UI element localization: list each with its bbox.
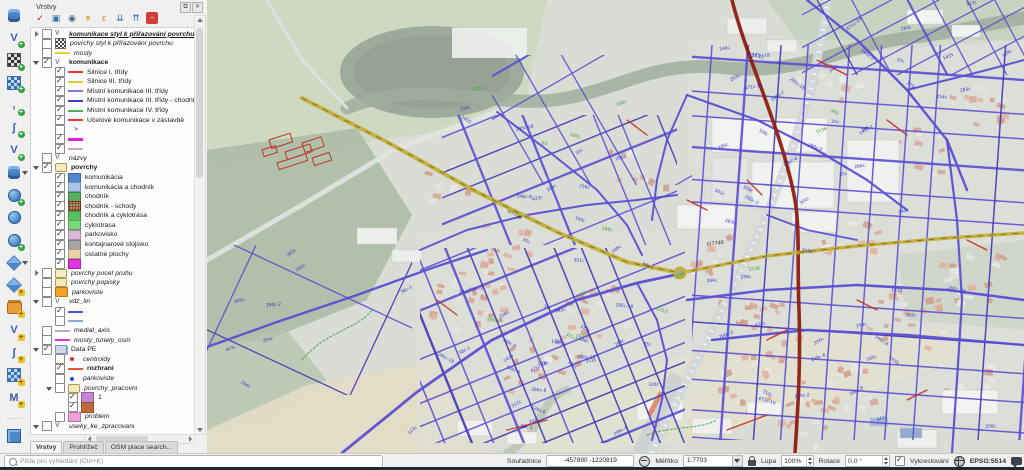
layer-row[interactable]: komunikácia bbox=[46, 173, 195, 183]
layer-row[interactable]: Vuseky_ke_zpracovani bbox=[33, 421, 195, 431]
scroll-right-icon[interactable] bbox=[189, 436, 192, 442]
expander-spacer bbox=[46, 251, 53, 258]
line-symbol bbox=[68, 110, 83, 112]
scale-lock-icon[interactable] bbox=[748, 460, 756, 466]
expander-spacer bbox=[46, 413, 53, 420]
svg-text:254c: 254c bbox=[936, 94, 948, 101]
expander-spacer bbox=[46, 184, 53, 191]
map-canvas[interactable]: 301c35c283c471c-10290c-2301c226c-6143526… bbox=[207, 0, 1024, 453]
layer-label: mosty bbox=[74, 50, 92, 57]
svg-text:1536: 1536 bbox=[748, 266, 760, 273]
scale-combobox[interactable]: 1:7703 bbox=[683, 455, 743, 467]
layer-row[interactable] bbox=[46, 307, 195, 317]
line-symbol bbox=[68, 100, 83, 102]
layer-row[interactable]: cyklotrasa bbox=[46, 220, 195, 230]
svg-text:1435: 1435 bbox=[551, 339, 562, 345]
scale-label: Měřítko bbox=[655, 458, 678, 465]
crs-status[interactable]: EPSG:5514 bbox=[970, 458, 1006, 465]
point-symbol bbox=[70, 377, 74, 381]
fill-symbol bbox=[68, 220, 81, 230]
expander-spacer bbox=[46, 97, 53, 104]
status-bar: Pište pro vyhledání (Ctrl+K) Souřadnice … bbox=[0, 453, 1024, 468]
fill-symbol bbox=[68, 182, 81, 192]
point-symbol bbox=[70, 357, 74, 361]
layer-checkbox[interactable] bbox=[55, 316, 65, 326]
layer-tree-vertical-scrollbar[interactable] bbox=[194, 15, 206, 435]
add-database-layer-button[interactable] bbox=[4, 163, 24, 183]
line-symbol bbox=[68, 90, 83, 92]
collapse-icon[interactable] bbox=[33, 59, 40, 66]
layer-row[interactable]: Místní komunikace III. třídy bbox=[46, 86, 195, 96]
expander-spacer bbox=[33, 289, 40, 296]
layer-row[interactable]: Místní komunikace IV. třídy bbox=[46, 106, 195, 116]
layer-checkbox[interactable] bbox=[55, 383, 65, 393]
topology-checker-button[interactable] bbox=[4, 426, 24, 446]
layer-tree: Vkomunikace styl k přiřazování povrchupo… bbox=[30, 27, 198, 435]
layer-row[interactable]: parkoviste bbox=[46, 374, 195, 384]
line-symbol bbox=[68, 148, 83, 150]
collapse-icon[interactable] bbox=[46, 385, 53, 392]
plus-badge-icon: + bbox=[18, 154, 25, 161]
fill-symbol bbox=[55, 287, 68, 297]
layer-label: povrchy popisky bbox=[71, 279, 120, 286]
coordinate-input[interactable]: -457890 -1220819 bbox=[546, 455, 634, 467]
layer-checkbox[interactable] bbox=[42, 268, 52, 278]
layer-label: Místní komunikace III. třídy bbox=[87, 88, 168, 95]
fill-symbol bbox=[68, 192, 81, 202]
collapse-icon[interactable] bbox=[33, 346, 40, 353]
layer-checkbox[interactable] bbox=[42, 326, 52, 336]
panel-tab-bar: Vrstvy Prohlížeč OSM place search... bbox=[30, 441, 179, 453]
layer-row[interactable]: povrchy popisky bbox=[33, 278, 195, 288]
layer-label: ostatné plochy bbox=[85, 251, 129, 258]
layer-row[interactable]: Účelové komunikace v zástavbě bbox=[46, 115, 195, 125]
vector-layer-icon: V bbox=[55, 154, 65, 162]
layer-row[interactable]: Data PE bbox=[33, 345, 195, 355]
filter-legend-button[interactable]: ▼ bbox=[82, 12, 94, 24]
new-shapefile-layer-button[interactable]: + bbox=[4, 298, 24, 318]
layer-label: parkoviste bbox=[72, 289, 103, 296]
magnifier-label: Lupa bbox=[761, 458, 776, 465]
layer-row[interactable]: Silnice III. třídy bbox=[46, 77, 195, 87]
new-temporary-layer-button[interactable]: + bbox=[4, 365, 24, 385]
layer-checkbox[interactable] bbox=[42, 345, 52, 355]
layer-label: komunikácia bbox=[85, 174, 123, 181]
layer-checkbox[interactable] bbox=[42, 29, 52, 39]
manage-map-themes-button[interactable]: ◉ bbox=[66, 12, 78, 24]
svg-text:1435: 1435 bbox=[891, 287, 903, 293]
layer-label: Místní komunikace III. třídy - chodníky bbox=[87, 97, 195, 104]
dropdown-caret-icon bbox=[22, 261, 28, 265]
collapse-icon[interactable] bbox=[33, 423, 40, 430]
vertical-scroll-thumb[interactable] bbox=[196, 28, 203, 178]
scroll-down-icon[interactable] bbox=[197, 428, 203, 432]
collapse-icon[interactable] bbox=[33, 164, 40, 171]
expander-spacer bbox=[46, 260, 53, 267]
layer-checkbox[interactable] bbox=[55, 144, 65, 154]
svg-text:328c: 328c bbox=[648, 382, 659, 388]
extent-toggle-icon[interactable] bbox=[639, 456, 650, 467]
layer-label: Data PE bbox=[71, 346, 96, 353]
expander-spacer bbox=[46, 222, 53, 229]
expander-spacer bbox=[46, 107, 53, 114]
expander-spacer bbox=[46, 117, 53, 124]
layer-row[interactable] bbox=[46, 316, 195, 326]
layer-row[interactable]: medial_axis bbox=[33, 326, 195, 336]
layer-row[interactable] bbox=[46, 259, 195, 269]
group-icon bbox=[55, 345, 67, 354]
layer-label: cyklotrasa bbox=[85, 222, 116, 229]
layer-label: Místní komunikace IV. třídy bbox=[87, 107, 168, 114]
layer-label: povrchy pocet pruhu bbox=[71, 270, 133, 277]
svg-text:290c-2: 290c-2 bbox=[266, 302, 282, 309]
layer-label: > bbox=[74, 126, 78, 133]
layer-row[interactable]: kontajnarové stojisko bbox=[46, 240, 195, 250]
plus-badge-icon: + bbox=[18, 109, 25, 116]
add-wfs-layer-button[interactable]: + bbox=[4, 230, 24, 250]
layer-row[interactable] bbox=[46, 134, 195, 144]
fill-symbol bbox=[68, 201, 81, 211]
layer-checkbox[interactable] bbox=[42, 421, 52, 431]
expander-spacer bbox=[46, 193, 53, 200]
svg-text:256c: 256c bbox=[985, 423, 997, 429]
filter-expression-button[interactable]: ε bbox=[98, 12, 110, 24]
layers-panel: Vrstvy ⧉ ✕ ✓▣◉▼ε⇊⇈− Vkomunikace styl k p… bbox=[28, 0, 208, 453]
svg-text:284c: 284c bbox=[706, 277, 718, 284]
tab-vrstvy[interactable]: Vrstvy bbox=[30, 441, 62, 453]
expander-spacer bbox=[46, 365, 53, 372]
expand-icon[interactable] bbox=[33, 270, 40, 277]
plus-badge-icon: + bbox=[18, 131, 25, 138]
expander-spacer bbox=[46, 145, 53, 152]
layer-label: mosty_tunely_osm bbox=[74, 337, 131, 344]
add-delimited-text-button[interactable]: ,+ bbox=[4, 95, 24, 115]
layer-row[interactable]: parkoviste bbox=[33, 287, 195, 297]
plus-badge-icon: + bbox=[18, 199, 25, 206]
svg-text:60: 60 bbox=[541, 141, 547, 147]
rotation-label: Rotace bbox=[819, 458, 841, 465]
layer-label: komunikácia a chodník bbox=[85, 184, 154, 191]
layer-row[interactable]: mosty bbox=[33, 48, 195, 58]
add-mesh-layer-button[interactable]: + bbox=[4, 73, 24, 93]
scale-dropdown-icon[interactable] bbox=[733, 455, 743, 467]
expander-spacer bbox=[33, 327, 40, 334]
new-gpx-layer-button[interactable]: ʃ+ bbox=[4, 343, 24, 363]
layer-row[interactable]: parkovisko bbox=[46, 230, 195, 240]
line-symbol bbox=[68, 311, 83, 313]
collapse-icon[interactable] bbox=[33, 298, 40, 305]
layer-label: Účelové komunikace v zástavbě bbox=[87, 117, 184, 124]
plus-badge-icon: + bbox=[18, 289, 25, 296]
vector-layer-icon: V bbox=[55, 422, 65, 430]
label-layer-icon bbox=[55, 278, 67, 287]
expander-spacer bbox=[46, 318, 53, 325]
plus-badge-icon: + bbox=[18, 311, 25, 318]
layer-checkbox[interactable] bbox=[55, 374, 65, 384]
fill-symbol bbox=[68, 173, 81, 183]
add-spatialite-layer-button[interactable]: ʃ+ bbox=[4, 118, 24, 138]
layer-checkbox[interactable] bbox=[68, 402, 78, 412]
fill-symbol bbox=[68, 249, 81, 259]
layer-checkbox[interactable] bbox=[42, 287, 52, 297]
render-label: Vykreslování bbox=[910, 458, 949, 465]
dropdown-caret-icon bbox=[22, 171, 28, 175]
svg-text:342c: 342c bbox=[905, 312, 916, 318]
layer-label: kontajnarové stojisko bbox=[85, 241, 148, 248]
layer-row[interactable] bbox=[59, 402, 195, 412]
fill-symbol bbox=[68, 211, 81, 221]
svg-text:301c: 301c bbox=[528, 418, 540, 425]
coordinate-label: Souřadnice bbox=[507, 458, 541, 465]
expander-spacer bbox=[46, 203, 53, 210]
scroll-up-icon[interactable] bbox=[197, 18, 203, 22]
expand-icon[interactable] bbox=[33, 31, 40, 38]
layer-row[interactable] bbox=[46, 144, 195, 154]
add-wcs-layer-button[interactable] bbox=[4, 208, 24, 228]
svg-text:254c: 254c bbox=[459, 289, 470, 295]
layer-row[interactable]: > bbox=[46, 125, 195, 135]
expander-spacer bbox=[46, 126, 53, 133]
fill-symbol bbox=[68, 259, 81, 269]
rotation-spinbox[interactable]: 0,0 ° bbox=[845, 455, 890, 467]
fill-symbol bbox=[68, 240, 81, 250]
svg-text:358c-1: 358c-1 bbox=[486, 317, 502, 324]
layers-panel-toolbar: ✓▣◉▼ε⇊⇈− bbox=[34, 11, 158, 25]
open-layer-styling-button[interactable]: ✓ bbox=[34, 12, 46, 24]
layer-row[interactable]: mosty_tunely_osm bbox=[33, 335, 195, 345]
svg-text:256c: 256c bbox=[740, 274, 752, 281]
layer-checkbox[interactable] bbox=[55, 412, 65, 422]
expander-spacer bbox=[46, 174, 53, 181]
svg-text:35c: 35c bbox=[831, 119, 840, 125]
expander-spacer bbox=[46, 136, 53, 143]
expander-spacer bbox=[46, 308, 53, 315]
remove-layer-button[interactable]: − bbox=[146, 12, 158, 24]
vector-layer-icon: V bbox=[55, 30, 65, 38]
layer-label: povrchy bbox=[71, 164, 97, 171]
qgis-window: V+++,+ʃ+V+++++V+ʃ++M+ Vrstvy ⧉ ✕ ✓▣◉▼ε⇊⇈… bbox=[0, 0, 1024, 470]
expander-spacer bbox=[33, 40, 40, 47]
search-placeholder: Pište pro vyhledání (Ctrl+K) bbox=[20, 458, 103, 465]
layer-row[interactable]: centroidy bbox=[46, 354, 195, 364]
expander-spacer bbox=[59, 404, 66, 411]
expander-spacer bbox=[33, 279, 40, 286]
expander-spacer bbox=[46, 88, 53, 95]
data-source-manager-button[interactable] bbox=[4, 5, 24, 25]
layer-checkbox[interactable] bbox=[42, 39, 52, 49]
messages-icon[interactable] bbox=[1011, 457, 1022, 465]
line-symbol bbox=[68, 138, 83, 141]
layer-checkbox[interactable] bbox=[42, 163, 52, 173]
layer-checkbox[interactable] bbox=[55, 364, 65, 374]
line-symbol bbox=[68, 320, 83, 322]
manage-layers-toolbar: V+++,+ʃ+V+++++V+ʃ++M+ bbox=[0, 0, 29, 453]
add-raster-layer-button[interactable]: + bbox=[4, 50, 24, 70]
line-symbol bbox=[55, 339, 70, 341]
plus-badge-icon: + bbox=[18, 401, 25, 408]
line-symbol bbox=[55, 330, 70, 332]
layer-label: povrchy_pracovni bbox=[84, 385, 137, 392]
layer-label: Silnice III. třídy bbox=[87, 78, 132, 85]
panel-close-button[interactable]: ✕ bbox=[192, 2, 203, 13]
layer-label: komunikace styl k přiřazování povrchu bbox=[69, 31, 194, 38]
layer-label: rozhraní bbox=[87, 365, 114, 372]
layer-label: Silnice I. třídy bbox=[87, 69, 128, 76]
expander-spacer bbox=[46, 356, 53, 363]
new-geopackage-layer-button[interactable]: + bbox=[4, 275, 24, 295]
layer-row[interactable]: ostatné plochy bbox=[46, 249, 195, 259]
layer-row[interactable]: povrchy pocet pruhu bbox=[33, 268, 195, 278]
layer-row[interactable]: Vnázvy bbox=[33, 153, 195, 163]
expander-spacer bbox=[33, 155, 40, 162]
layer-label: chodník - schody bbox=[85, 203, 136, 210]
layer-label: problem bbox=[85, 413, 110, 420]
layer-label: chodník bbox=[85, 193, 109, 200]
expander-spacer bbox=[33, 337, 40, 344]
layer-checkbox[interactable] bbox=[55, 307, 65, 317]
fill-symbol bbox=[68, 230, 81, 240]
layer-label: názvy bbox=[69, 155, 87, 162]
add-postgis-layer-button[interactable]: V+ bbox=[4, 140, 24, 160]
line-symbol bbox=[68, 119, 83, 121]
svg-text:301c: 301c bbox=[573, 257, 585, 264]
tab-prohlizec[interactable]: Prohlížeč bbox=[63, 441, 103, 453]
expander-spacer bbox=[46, 212, 53, 219]
svg-text:346c-8: 346c-8 bbox=[517, 194, 533, 201]
layer-row[interactable]: rozhraní bbox=[46, 364, 195, 374]
layer-label: komunikace bbox=[69, 59, 108, 66]
add-wms-layer-button[interactable]: + bbox=[4, 185, 24, 205]
plus-badge-icon: + bbox=[18, 64, 25, 71]
layer-checkbox[interactable] bbox=[55, 259, 65, 269]
layer-label: parkoviste bbox=[83, 375, 114, 382]
layer-row[interactable]: 1 bbox=[59, 393, 195, 403]
line-symbol bbox=[68, 71, 83, 73]
panel-float-button[interactable]: ⧉ bbox=[180, 2, 191, 13]
expander-spacer bbox=[46, 375, 53, 382]
plus-badge-icon: + bbox=[18, 41, 25, 48]
expander-spacer bbox=[46, 231, 53, 238]
layer-label: useky_ke_zpracovani bbox=[69, 423, 134, 430]
layer-row[interactable]: chodník - schody bbox=[46, 201, 195, 211]
expander-spacer bbox=[33, 50, 40, 57]
layer-row[interactable]: problem bbox=[46, 412, 195, 422]
expand-all-button[interactable]: ⇊ bbox=[114, 12, 126, 24]
fill-symbol bbox=[68, 412, 81, 422]
svg-text:165c: 165c bbox=[537, 360, 549, 367]
add-vector-layer-button[interactable]: V+ bbox=[4, 28, 24, 48]
tab-osm-place-search[interactable]: OSM place search... bbox=[105, 441, 179, 453]
expander-spacer bbox=[46, 69, 53, 76]
svg-text:295c-18: 295c-18 bbox=[752, 52, 770, 58]
expander-spacer bbox=[46, 241, 53, 248]
layer-label: medial_axis bbox=[74, 327, 110, 334]
layer-checkbox[interactable] bbox=[55, 115, 65, 125]
plus-badge-icon: + bbox=[18, 86, 25, 93]
expander-spacer bbox=[46, 78, 53, 85]
layer-label: chodník a cyklotrasa bbox=[85, 212, 147, 219]
line-symbol bbox=[55, 52, 70, 54]
plus-badge-icon: + bbox=[18, 244, 25, 251]
layer-row[interactable]: Silnice I. třídy bbox=[46, 67, 195, 77]
layer-label: vdz_lin bbox=[69, 298, 90, 305]
svg-text:266c-8: 266c-8 bbox=[531, 387, 547, 394]
plus-badge-icon: + bbox=[18, 379, 25, 386]
collapse-all-button[interactable]: ⇈ bbox=[130, 12, 142, 24]
line-symbol bbox=[68, 81, 83, 83]
new-virtual-layer-button[interactable]: M+ bbox=[4, 388, 24, 408]
layer-label: 1 bbox=[98, 394, 102, 401]
add-group-button[interactable]: ▣ bbox=[50, 12, 62, 24]
new-spatialite-layer-button[interactable]: V+ bbox=[4, 320, 24, 340]
svg-text:295c-18: 295c-18 bbox=[577, 354, 595, 360]
plus-badge-icon: + bbox=[18, 334, 25, 341]
layer-row[interactable]: chodník bbox=[46, 192, 195, 202]
layer-checkbox[interactable] bbox=[42, 58, 52, 68]
svg-text:35c: 35c bbox=[643, 341, 652, 347]
search-icon bbox=[9, 458, 17, 466]
layer-label: centroidy bbox=[83, 356, 111, 363]
expander-spacer bbox=[59, 394, 66, 401]
layers-panel-title: Vrstvy bbox=[36, 2, 57, 11]
layer-row[interactable]: komunikácia a chodník bbox=[46, 182, 195, 192]
render-checkbox[interactable] bbox=[895, 456, 905, 466]
layer-label: parkovisko bbox=[85, 231, 118, 238]
label-layer-icon bbox=[55, 269, 67, 278]
crs-globe-icon[interactable] bbox=[954, 456, 965, 467]
layer-checkbox[interactable] bbox=[42, 278, 52, 288]
magnifier-spinbox[interactable]: 100% bbox=[781, 455, 813, 467]
layer-row[interactable]: Místní komunikace III. třídy - chodníky bbox=[46, 96, 195, 106]
line-symbol bbox=[68, 368, 83, 370]
layer-row[interactable]: chodník a cyklotrasa bbox=[46, 211, 195, 221]
layer-checkbox[interactable] bbox=[42, 297, 52, 307]
layer-row[interactable]: povrchy styl k přiřazování povrchu bbox=[33, 39, 195, 49]
add-web-service-button[interactable] bbox=[4, 253, 24, 273]
layer-label: povrchy styl k přiřazování povrchu bbox=[70, 40, 173, 47]
plus-badge-icon: + bbox=[18, 356, 25, 363]
